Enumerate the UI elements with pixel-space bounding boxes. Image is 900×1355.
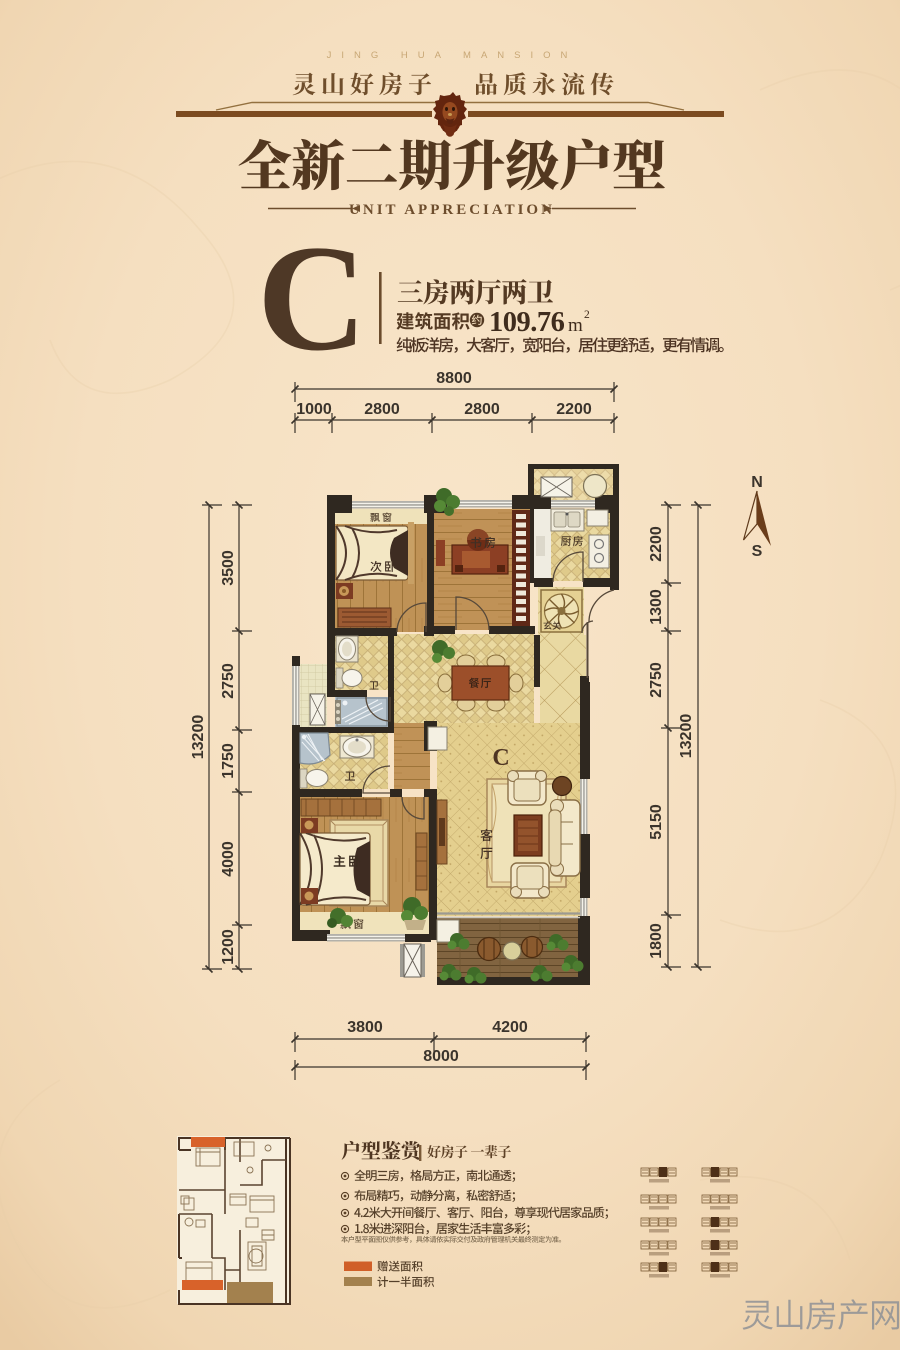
svg-text:C: C: [257, 214, 367, 382]
svg-text:2750: 2750: [648, 662, 665, 698]
svg-text:2200: 2200: [648, 526, 665, 562]
svg-text:JING HUA MANSION: JING HUA MANSION: [327, 50, 578, 61]
svg-text:109.76: 109.76: [489, 307, 565, 338]
svg-text:2750: 2750: [220, 663, 237, 699]
svg-text:m: m: [568, 315, 583, 336]
svg-text:1000: 1000: [296, 401, 332, 418]
svg-text:2200: 2200: [556, 401, 592, 418]
svg-text:C: C: [492, 745, 509, 771]
svg-text:2: 2: [584, 309, 590, 321]
svg-text:13200: 13200: [190, 715, 207, 760]
svg-text:4200: 4200: [492, 1019, 528, 1036]
svg-text:UNIT APPRECIATION: UNIT APPRECIATION: [349, 202, 555, 218]
svg-text:N: N: [751, 474, 763, 491]
svg-text:4000: 4000: [220, 841, 237, 877]
svg-text:1800: 1800: [648, 923, 665, 959]
svg-text:8000: 8000: [423, 1048, 459, 1065]
svg-text:8800: 8800: [436, 370, 472, 387]
svg-text:3800: 3800: [347, 1019, 383, 1036]
svg-text:S: S: [752, 543, 763, 560]
svg-text:5150: 5150: [648, 804, 665, 840]
svg-text:3500: 3500: [220, 550, 237, 586]
svg-text:13200: 13200: [678, 714, 695, 759]
svg-text:1300: 1300: [648, 589, 665, 625]
svg-text:1750: 1750: [220, 743, 237, 779]
svg-text:2800: 2800: [464, 401, 500, 418]
svg-text:2800: 2800: [364, 401, 400, 418]
svg-text:1200: 1200: [220, 929, 237, 965]
